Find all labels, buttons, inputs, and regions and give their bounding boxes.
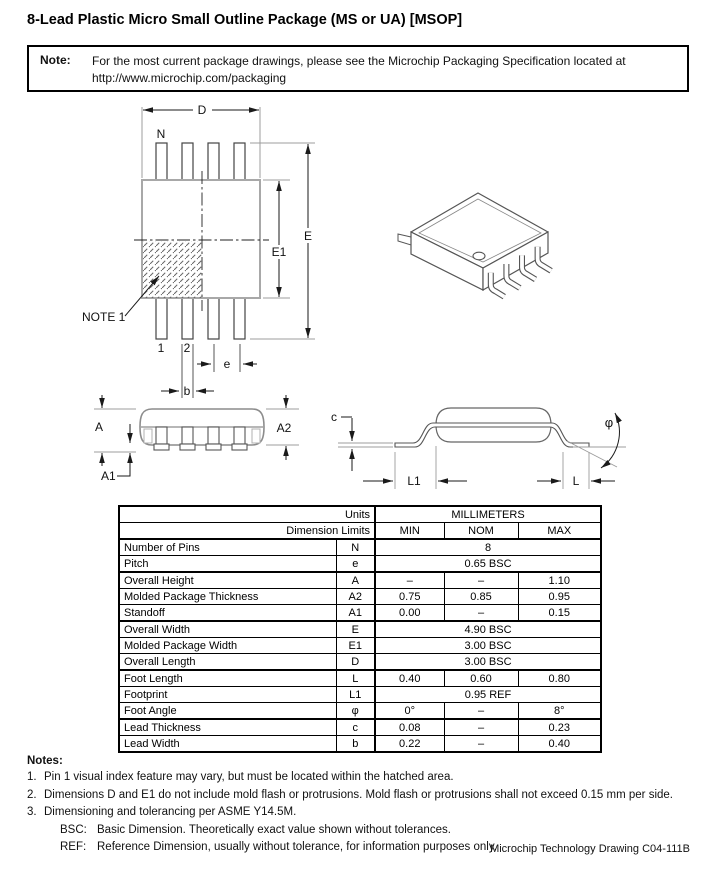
- table-header-units: Units MILLIMETERS: [119, 506, 601, 523]
- min-header-cell: MIN: [375, 523, 444, 540]
- dim-label-e: e: [224, 357, 231, 371]
- table-row: Overall Length D 3.00 BSC: [119, 654, 601, 671]
- symbol-cell: L1: [336, 687, 375, 703]
- top-view-drawing: D N E E1 NOTE 1 1 2 e: [82, 102, 317, 398]
- dim-label-b: b: [184, 384, 191, 398]
- max-cell: 0.15: [518, 605, 601, 622]
- span-value-cell: 0.65 BSC: [375, 556, 601, 573]
- note-text: Dimensioning and tolerancing per ASME Y1…: [44, 804, 296, 822]
- dimension-name-cell: Standoff: [119, 605, 336, 622]
- table-row: Overall Height A – – 1.10: [119, 572, 601, 589]
- table-row: Pitch e 0.65 BSC: [119, 556, 601, 573]
- pin-number-2: 2: [184, 341, 191, 355]
- note-number: 3.: [27, 804, 44, 822]
- dim-label-N: N: [157, 127, 166, 141]
- definition-text: Reference Dimension, usually without tol…: [97, 839, 497, 857]
- definition-term: REF:: [60, 839, 97, 857]
- notes-heading: Notes:: [27, 753, 697, 769]
- dim-label-c: c: [331, 410, 337, 424]
- drawing-number: Microchip Technology Drawing C04-111B: [490, 843, 690, 855]
- max-cell: 0.95: [518, 589, 601, 605]
- side-profile-drawing: c φ L1 L: [331, 408, 626, 489]
- limits-label-cell: Dimension Limits: [119, 523, 375, 540]
- table-row: Standoff A1 0.00 – 0.15: [119, 605, 601, 622]
- min-cell: 0.22: [375, 736, 444, 753]
- dimension-name-cell: Foot Length: [119, 670, 336, 687]
- span-value-cell: 3.00 BSC: [375, 638, 601, 654]
- symbol-cell: A: [336, 572, 375, 589]
- dim-label-phi: φ: [605, 415, 613, 430]
- table-row: Lead Thickness c 0.08 – 0.23: [119, 719, 601, 736]
- max-header-cell: MAX: [518, 523, 601, 540]
- min-cell: 0.75: [375, 589, 444, 605]
- symbol-cell: A2: [336, 589, 375, 605]
- dimension-name-cell: Foot Angle: [119, 703, 336, 720]
- dimension-name-cell: Footprint: [119, 687, 336, 703]
- table-row: Foot Length L 0.40 0.60 0.80: [119, 670, 601, 687]
- iso-far-side-lead: [398, 234, 411, 245]
- symbol-cell: e: [336, 556, 375, 573]
- min-cell: 0.40: [375, 670, 444, 687]
- max-cell: 8°: [518, 703, 601, 720]
- table-row: Footprint L1 0.95 REF: [119, 687, 601, 703]
- iso-view-drawing: [398, 193, 551, 297]
- table-header-limits: Dimension Limits MIN NOM MAX: [119, 523, 601, 540]
- notes-section: Notes: 1. Pin 1 visual index feature may…: [27, 753, 697, 857]
- symbol-cell: φ: [336, 703, 375, 720]
- dimension-name-cell: Pitch: [119, 556, 336, 573]
- note-item-3: 3. Dimensioning and tolerancing per ASME…: [27, 804, 697, 822]
- dimension-name-cell: Lead Thickness: [119, 719, 336, 736]
- note-text: Dimensions D and E1 do not include mold …: [44, 787, 673, 805]
- span-value-cell: 3.00 BSC: [375, 654, 601, 671]
- dim-label-A1: A1: [101, 469, 116, 483]
- symbol-cell: E: [336, 621, 375, 638]
- dim-label-A2: A2: [277, 421, 292, 435]
- definition-term: BSC:: [60, 822, 97, 840]
- min-cell: –: [375, 572, 444, 589]
- dim-label-E: E: [304, 229, 312, 243]
- units-value-cell: MILLIMETERS: [375, 506, 601, 523]
- note1-callout: NOTE 1: [82, 310, 126, 324]
- note-number: 1.: [27, 769, 44, 787]
- span-value-cell: 4.90 BSC: [375, 621, 601, 638]
- definition-bsc: BSC: Basic Dimension. Theoretically exac…: [60, 822, 697, 840]
- table-row: Molded Package Width E1 3.00 BSC: [119, 638, 601, 654]
- nom-cell: 0.85: [444, 589, 518, 605]
- nom-cell: –: [444, 736, 518, 753]
- max-cell: 0.80: [518, 670, 601, 687]
- iso-pin1-dot: [473, 252, 485, 260]
- dim-label-A: A: [95, 420, 103, 434]
- dimension-name-cell: Molded Package Width: [119, 638, 336, 654]
- note-number: 2.: [27, 787, 44, 805]
- table-row: Overall Width E 4.90 BSC: [119, 621, 601, 638]
- max-cell: 0.40: [518, 736, 601, 753]
- symbol-cell: E1: [336, 638, 375, 654]
- front-view-drawing: A A1 A2: [94, 395, 299, 483]
- table-row: Lead Width b 0.22 – 0.40: [119, 736, 601, 753]
- nom-cell: 0.60: [444, 670, 518, 687]
- span-value-cell: 8: [375, 539, 601, 556]
- dimension-name-cell: Molded Package Thickness: [119, 589, 336, 605]
- dimension-table: Units MILLIMETERS Dimension Limits MIN N…: [118, 505, 602, 753]
- table-row: Molded Package Thickness A2 0.75 0.85 0.…: [119, 589, 601, 605]
- symbol-cell: c: [336, 719, 375, 736]
- note-item-1: 1. Pin 1 visual index feature may vary, …: [27, 769, 697, 787]
- symbol-cell: A1: [336, 605, 375, 622]
- symbol-cell: b: [336, 736, 375, 753]
- units-label-cell: Units: [119, 506, 375, 523]
- symbol-cell: D: [336, 654, 375, 671]
- nom-cell: –: [444, 572, 518, 589]
- dimension-name-cell: Number of Pins: [119, 539, 336, 556]
- pin1-index-hatched-area: [143, 241, 202, 298]
- min-cell: 0.00: [375, 605, 444, 622]
- nom-cell: –: [444, 703, 518, 720]
- nom-cell: –: [444, 605, 518, 622]
- note-item-2: 2. Dimensions D and E1 do not include mo…: [27, 787, 697, 805]
- table-row: Foot Angle φ 0° – 8°: [119, 703, 601, 720]
- dim-label-D: D: [198, 103, 207, 117]
- dimension-name-cell: Overall Length: [119, 654, 336, 671]
- min-cell: 0°: [375, 703, 444, 720]
- nom-header-cell: NOM: [444, 523, 518, 540]
- dimension-name-cell: Overall Width: [119, 621, 336, 638]
- note-text: Pin 1 visual index feature may vary, but…: [44, 769, 454, 787]
- nom-cell: –: [444, 719, 518, 736]
- pin-number-1: 1: [158, 341, 165, 355]
- dim-label-L: L: [573, 474, 580, 488]
- dimension-name-cell: Lead Width: [119, 736, 336, 753]
- table-row: Number of Pins N 8: [119, 539, 601, 556]
- definition-text: Basic Dimension. Theoretically exact val…: [97, 822, 451, 840]
- symbol-cell: L: [336, 670, 375, 687]
- max-cell: 0.23: [518, 719, 601, 736]
- span-value-cell: 0.95 REF: [375, 687, 601, 703]
- dimension-name-cell: Overall Height: [119, 572, 336, 589]
- datasheet-page: 8-Lead Plastic Micro Small Outline Packa…: [0, 0, 717, 878]
- min-cell: 0.08: [375, 719, 444, 736]
- dim-label-L1: L1: [407, 474, 421, 488]
- dim-label-E1: E1: [272, 245, 287, 259]
- symbol-cell: N: [336, 539, 375, 556]
- max-cell: 1.10: [518, 572, 601, 589]
